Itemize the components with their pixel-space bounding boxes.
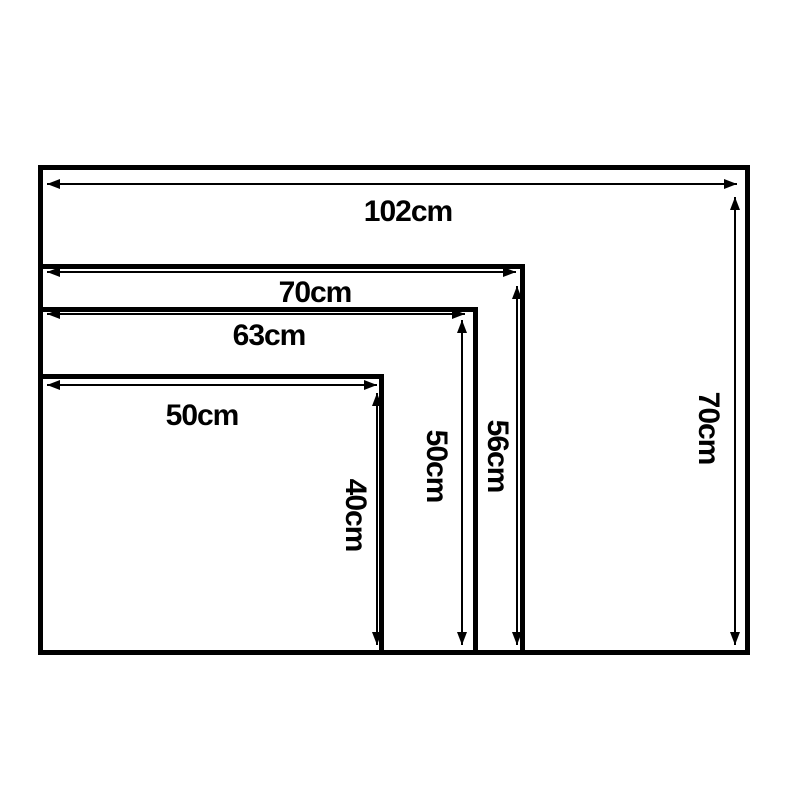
- height-arrow-70cm: [734, 197, 736, 645]
- height-label-56cm: 56cm: [482, 420, 512, 493]
- width-arrow-50cm: [47, 384, 377, 386]
- height-arrow-50cm: [461, 320, 463, 645]
- height-arrow-40cm: [376, 393, 378, 645]
- height-label-50cm: 50cm: [421, 430, 451, 503]
- width-label-50cm: 50cm: [166, 401, 239, 431]
- width-label-102cm: 102cm: [364, 197, 452, 227]
- width-label-70cm: 70cm: [279, 278, 352, 308]
- width-label-63cm: 63cm: [233, 321, 306, 351]
- width-arrow-102cm: [47, 183, 737, 185]
- width-arrow-70cm: [47, 271, 516, 273]
- width-arrow-63cm: [47, 313, 465, 315]
- size-comparison-diagram: 102cm 70cm 63cm 50cm 70cm 56cm 50cm 40cm: [0, 0, 800, 800]
- height-label-70cm: 70cm: [693, 392, 723, 465]
- height-arrow-56cm: [516, 286, 518, 645]
- height-label-40cm: 40cm: [340, 479, 370, 552]
